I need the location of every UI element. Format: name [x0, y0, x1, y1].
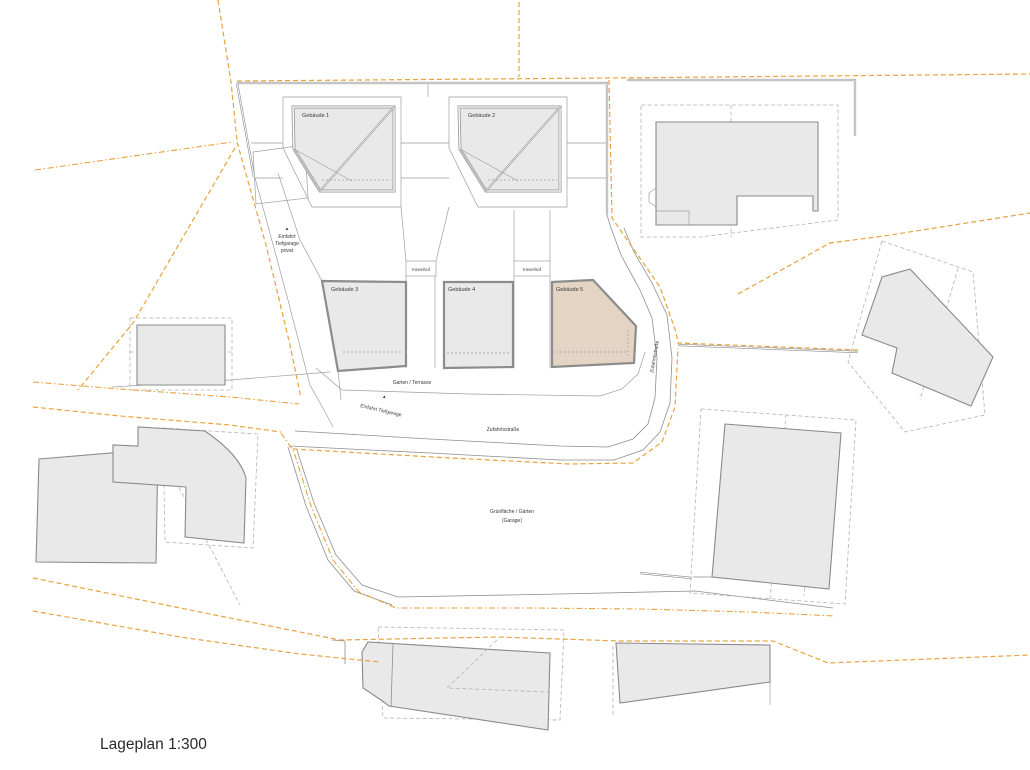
existing-building-north-east [656, 122, 818, 225]
innenhof-2-label: Innenhof [523, 267, 542, 272]
existing-building-east [862, 269, 993, 406]
existing-building-south-west [362, 642, 550, 730]
gebaeude-1 [293, 107, 394, 191]
site-plan-drawing: Gebäude 1 Gebäude 2 Gebäude 3 Gebäude 4 … [0, 0, 1030, 770]
innenhof-1-label: Innenhof [412, 267, 431, 272]
existing-building-south-east [616, 643, 770, 703]
page-title: Lageplan 1:300 [100, 736, 207, 753]
gruenflaeche-label-line2: (Garage) [502, 518, 522, 524]
garten-terrasse-label: Garten / Terrasse [393, 380, 432, 386]
existing-building-south-tall [712, 424, 841, 589]
zufahrtsstrasse-main-label: Zufahrtsstraße [487, 427, 520, 433]
gebaeude-4 [444, 282, 513, 368]
gruenflaeche-label-line1: Grünfläche / Gärten [490, 509, 534, 515]
dashed-parcels [110, 105, 985, 720]
new-buildings [293, 107, 636, 371]
gebaeude-4-label: Gebäude 4 [448, 287, 475, 293]
einfahrt-marker-icon: ▲ [382, 394, 387, 400]
gebaeude-1-label: Gebäude 1 [302, 113, 329, 119]
zufahrtsstrasse-side-label: Zufahrtsstraße [649, 340, 661, 373]
gebaeude-3 [322, 281, 406, 371]
gebaeude-5 [552, 280, 636, 367]
gebaeude-2 [459, 107, 560, 191]
einfahrt-tiefgarage-label: Einfahrt Tiefgarage [360, 403, 403, 418]
existing-buildings [36, 122, 993, 730]
gebaeude-2-label: Gebäude 2 [468, 113, 495, 119]
site-plan-canvas: Gebäude 1 Gebäude 2 Gebäude 3 Gebäude 4 … [0, 0, 1030, 770]
gebaeude-5-label: Gebäude 5 [556, 287, 583, 293]
einfahrt-privat-line2: Tiefgarage [275, 241, 299, 247]
einfahrt-privat-line3: privat [281, 248, 294, 254]
gebaeude-3-label: Gebäude 3 [331, 287, 358, 293]
einfahrt-privat-line1: Einfahrt [278, 234, 296, 240]
garage-entry-marker-icon: ▲ [285, 226, 289, 231]
existing-building-west-small [137, 325, 225, 385]
